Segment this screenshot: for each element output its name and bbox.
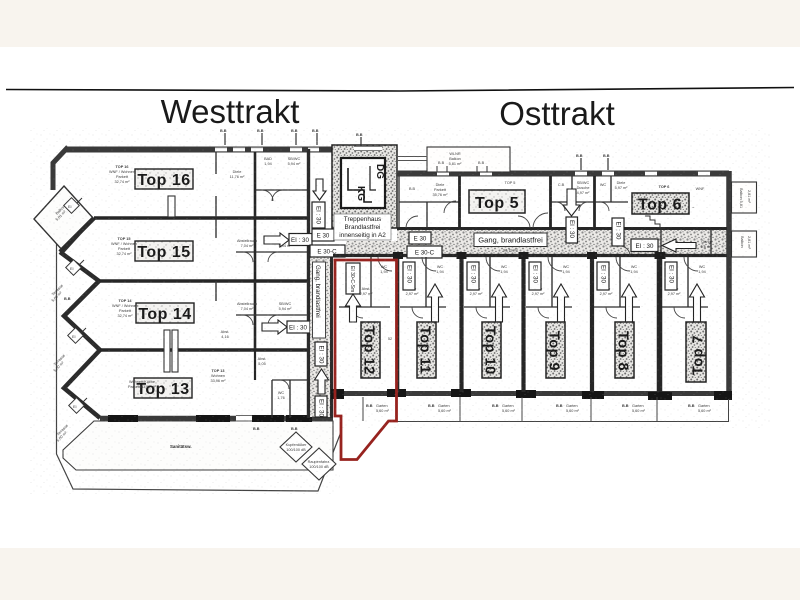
svg-text:Westtrakt: Westtrakt: [161, 93, 300, 130]
svg-text:Osttrakt: Osttrakt: [499, 95, 615, 132]
